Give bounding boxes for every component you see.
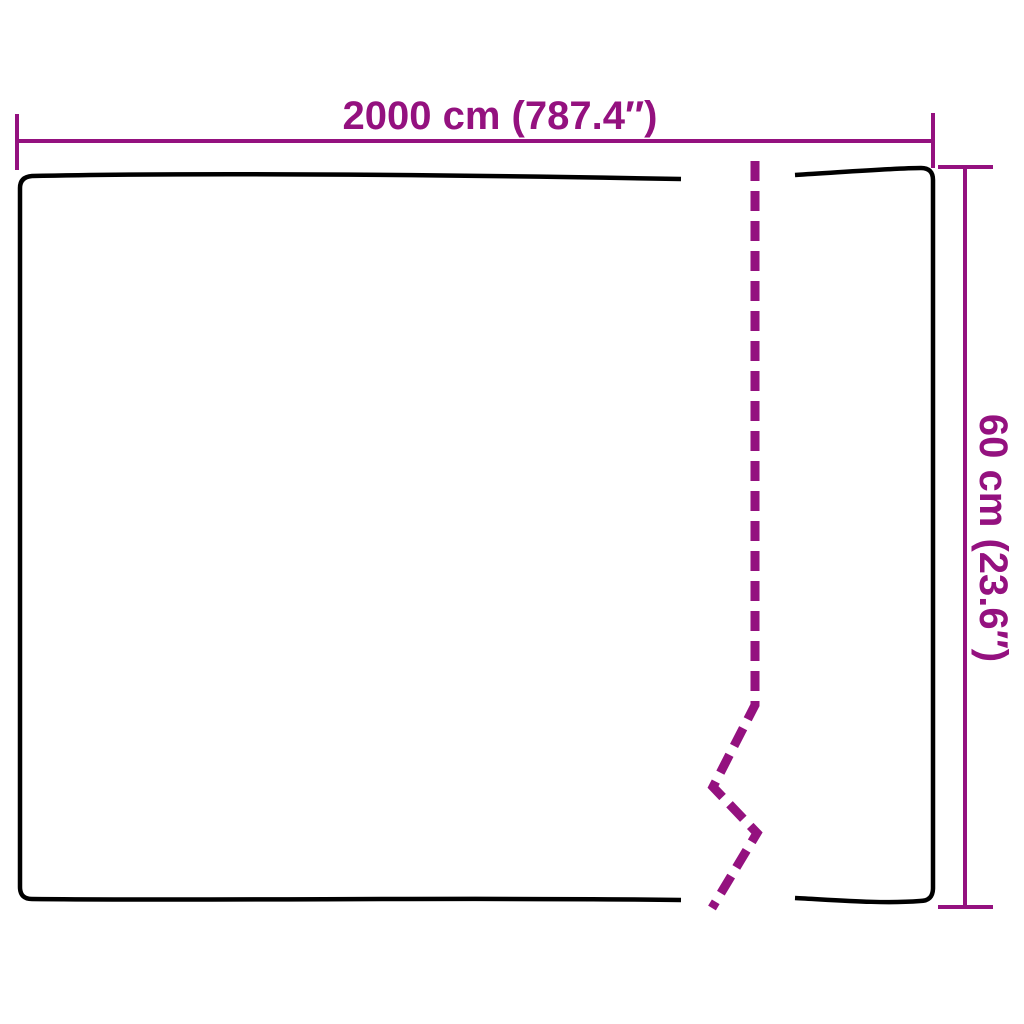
diagram-background [0, 0, 1024, 1024]
width-dimension-label: 2000 cm (787.4″) [343, 94, 658, 138]
dimension-diagram-svg: 2000 cm (787.4″) 60 cm (23.6″) [0, 0, 1024, 1024]
dimension-diagram: 2000 cm (787.4″) 60 cm (23.6″) [0, 0, 1024, 1024]
height-dimension-label: 60 cm (23.6″) [971, 414, 1015, 662]
